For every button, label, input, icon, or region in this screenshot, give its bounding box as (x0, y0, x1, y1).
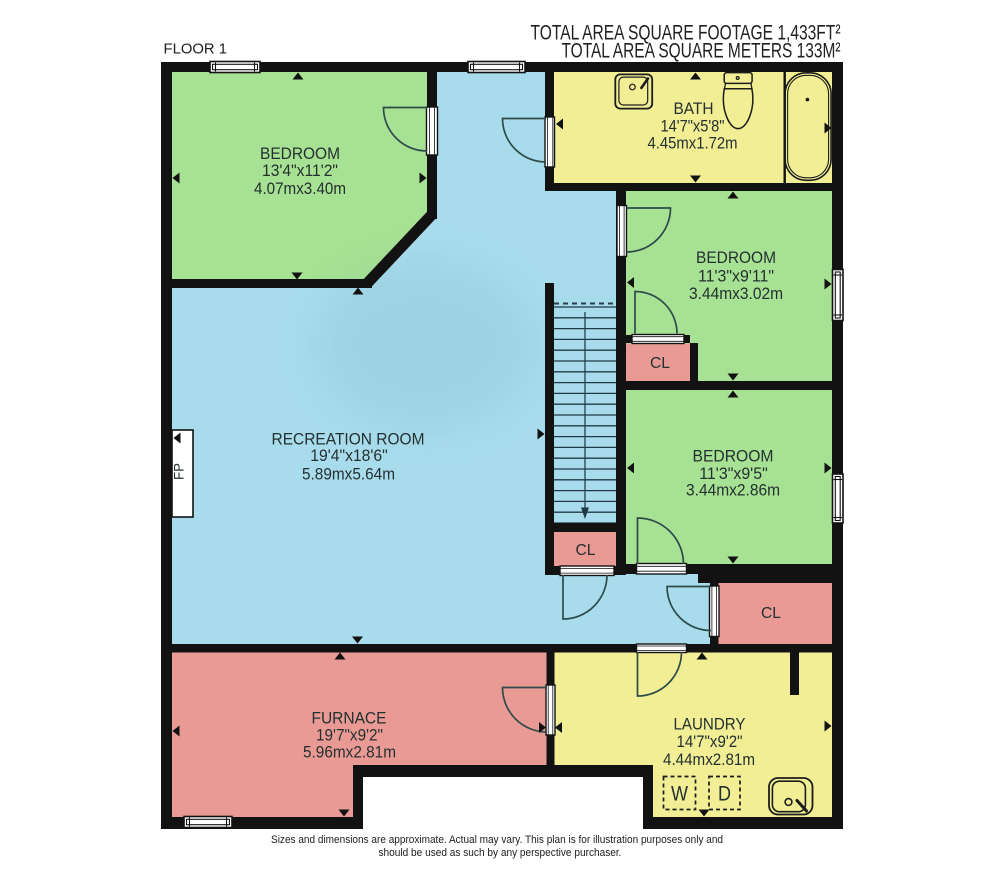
svg-text:FLOOR 1: FLOOR 1 (164, 42, 228, 58)
svg-text:3.44mx3.02m: 3.44mx3.02m (689, 285, 783, 303)
svg-text:should be used as such by any: should be used as such by any perspectiv… (379, 847, 622, 859)
svg-text:14'7"x9'2": 14'7"x9'2" (677, 733, 743, 751)
svg-text:BATH: BATH (674, 100, 714, 118)
svg-text:FURNACE: FURNACE (312, 710, 387, 728)
svg-text:D: D (718, 783, 731, 806)
svg-text:BEDROOM: BEDROOM (696, 249, 776, 267)
svg-text:CL: CL (576, 542, 596, 559)
svg-text:Sizes and dimensions are appro: Sizes and dimensions are approximate. Ac… (271, 834, 723, 846)
svg-text:13'4"x11'2": 13'4"x11'2" (262, 162, 338, 180)
svg-text:CL: CL (761, 605, 781, 622)
svg-text:4.44mx2.81m: 4.44mx2.81m (663, 751, 755, 769)
svg-text:CL: CL (650, 355, 670, 372)
svg-text:5.89mx5.64m: 5.89mx5.64m (302, 466, 395, 484)
svg-text:4.45mx1.72m: 4.45mx1.72m (648, 135, 738, 153)
svg-text:19'4"x18'6": 19'4"x18'6" (310, 447, 388, 465)
svg-text:LAUNDRY: LAUNDRY (674, 716, 746, 734)
svg-text:BEDROOM: BEDROOM (260, 145, 340, 163)
svg-text:FP: FP (172, 463, 187, 480)
svg-text:11'3"x9'11": 11'3"x9'11" (698, 268, 774, 286)
svg-text:RECREATION ROOM: RECREATION ROOM (272, 431, 425, 449)
svg-text:TOTAL AREA SQUARE METERS 133M²: TOTAL AREA SQUARE METERS 133M² (562, 39, 841, 63)
svg-text:11'3"x9'5": 11'3"x9'5" (699, 465, 768, 483)
svg-text:W: W (671, 783, 688, 806)
svg-text:19'7"x9'2": 19'7"x9'2" (316, 727, 383, 745)
svg-text:BEDROOM: BEDROOM (693, 448, 774, 466)
svg-text:5.96mx2.81m: 5.96mx2.81m (303, 744, 396, 762)
svg-text:3.44mx2.86m: 3.44mx2.86m (686, 482, 780, 500)
svg-text:14'7"x5'8": 14'7"x5'8" (661, 118, 725, 136)
svg-text:4.07mx3.40m: 4.07mx3.40m (254, 180, 346, 198)
